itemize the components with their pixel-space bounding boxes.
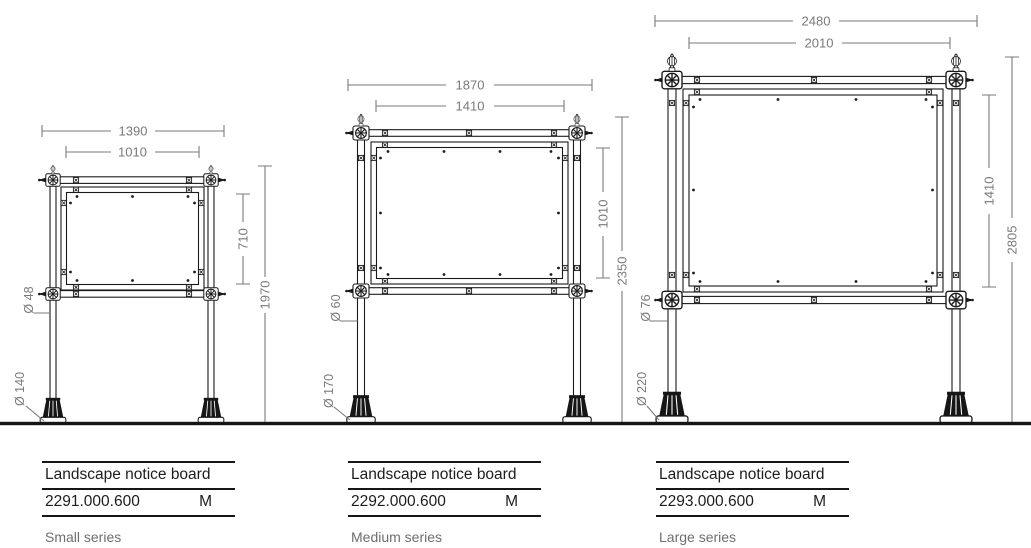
dim-post-diameter: Ø 60 bbox=[329, 294, 358, 321]
dim-label: Ø 76 bbox=[639, 294, 653, 321]
series-label: Medium series bbox=[348, 529, 541, 545]
dim-board-height: 1410 bbox=[982, 95, 997, 287]
dim-label: 1870 bbox=[456, 78, 485, 93]
article-number: 2291.000.600 bbox=[45, 493, 140, 511]
post-left bbox=[668, 78, 676, 418]
spec-table: Landscape notice board 2293.000.600 M bbox=[656, 461, 849, 517]
dim-label: Ø 60 bbox=[329, 294, 343, 321]
board-frame bbox=[61, 187, 204, 290]
dim-label: 2805 bbox=[1005, 226, 1020, 255]
dim-foot-diameter: Ø 170 bbox=[322, 374, 350, 420]
spec-table: Landscape notice board 2292.000.600 M bbox=[348, 461, 541, 517]
post-left bbox=[358, 131, 365, 418]
dim-label: 1410 bbox=[982, 177, 997, 206]
dim-label: Ø 220 bbox=[635, 372, 649, 406]
article-number: 2293.000.600 bbox=[659, 493, 754, 511]
dim-overall-height: 2350 bbox=[615, 117, 630, 423]
dim-label: Ø 170 bbox=[322, 374, 336, 408]
dim-label: 2480 bbox=[802, 14, 831, 29]
spec-table: Landscape notice board 2291.000.600 M bbox=[42, 461, 235, 517]
board-frame bbox=[683, 89, 943, 292]
dim-label: 1410 bbox=[456, 99, 485, 114]
dim-label: 1010 bbox=[118, 145, 147, 160]
dim-label: 1970 bbox=[258, 281, 273, 310]
dim-overall-height: 2805 bbox=[1005, 57, 1020, 423]
dim-foot-diameter: Ø 220 bbox=[635, 372, 659, 420]
board-frame bbox=[371, 142, 568, 284]
product-name: Landscape notice board bbox=[656, 463, 849, 490]
article-row: 2293.000.600 M bbox=[656, 490, 849, 517]
product-name: Landscape notice board bbox=[42, 463, 235, 490]
model-code: M bbox=[813, 493, 826, 511]
dim-overall-width: 1390 bbox=[42, 124, 224, 139]
article-number: 2292.000.600 bbox=[351, 493, 446, 511]
small-board-drawing: 1390 1010 710 1970 Ø 48 Ø 140 bbox=[13, 124, 273, 424]
product-table-medium: Landscape notice board 2292.000.600 M Me… bbox=[348, 461, 541, 545]
model-code: M bbox=[505, 493, 518, 511]
dim-label: Ø 48 bbox=[22, 286, 36, 313]
series-label: Large series bbox=[656, 529, 849, 545]
dim-label: 1010 bbox=[596, 200, 611, 229]
technical-drawing-sheet: 1390 1010 710 1970 Ø 48 Ø 140 bbox=[0, 0, 1031, 548]
dim-overall-width: 2480 bbox=[655, 14, 977, 29]
post-right bbox=[952, 78, 960, 418]
dim-label: 710 bbox=[236, 228, 251, 250]
article-row: 2292.000.600 M bbox=[348, 490, 541, 517]
product-table-small: Landscape notice board 2291.000.600 M Sm… bbox=[42, 461, 235, 545]
dim-label: 1390 bbox=[119, 124, 148, 139]
ground-line bbox=[0, 422, 1031, 425]
dim-board-height: 1010 bbox=[596, 148, 611, 278]
dim-overall-height: 1970 bbox=[258, 166, 273, 423]
dim-label: 2010 bbox=[805, 36, 834, 51]
dim-board-width: 1010 bbox=[66, 145, 199, 160]
product-name: Landscape notice board bbox=[348, 463, 541, 490]
dim-label: Ø 140 bbox=[13, 372, 27, 406]
series-label: Small series bbox=[42, 529, 235, 545]
medium-board-drawing: 1870 1410 1010 2350 Ø 60 Ø 170 bbox=[322, 78, 630, 424]
post-right bbox=[574, 131, 581, 418]
dim-board-width: 1410 bbox=[376, 99, 564, 114]
large-board-drawing: 2480 2010 1410 2805 Ø 76 Ø 220 bbox=[635, 14, 1020, 424]
dim-board-width: 2010 bbox=[689, 36, 950, 51]
article-row: 2291.000.600 M bbox=[42, 490, 235, 517]
dim-board-height: 710 bbox=[236, 194, 251, 284]
dim-overall-width: 1870 bbox=[348, 78, 592, 93]
dim-foot-diameter: Ø 140 bbox=[13, 372, 44, 421]
product-table-large: Landscape notice board 2293.000.600 M La… bbox=[656, 461, 849, 545]
dim-label: 2350 bbox=[615, 257, 630, 286]
model-code: M bbox=[199, 493, 212, 511]
